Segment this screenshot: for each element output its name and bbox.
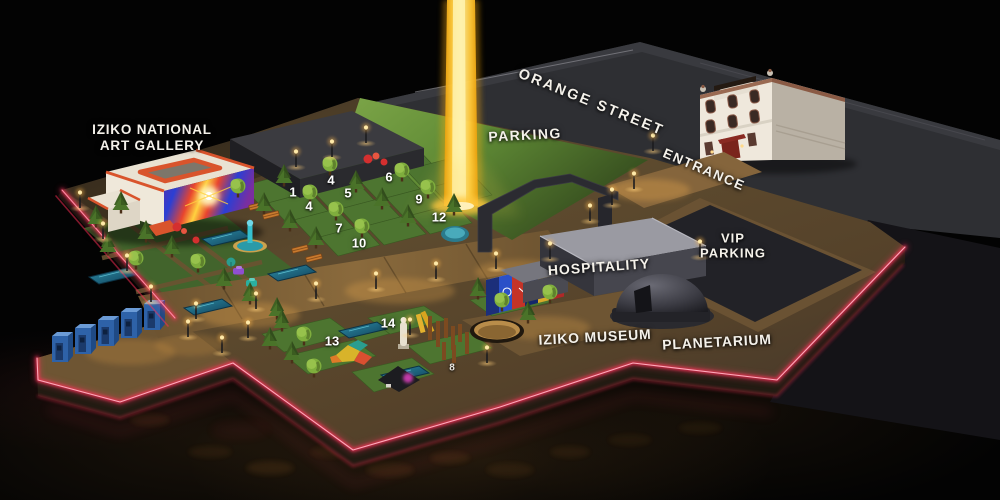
plot-marker-12: 12 — [432, 210, 446, 225]
venue-map-stage: IZIKO NATIONAL ART GALLERY ORANGE STREET… — [0, 0, 1000, 500]
plot-marker-13: 13 — [325, 334, 339, 349]
label-gallery-line2: ART GALLERY — [92, 138, 212, 154]
plot-marker-6: 6 — [385, 170, 392, 185]
plot-marker-5: 5 — [344, 186, 351, 201]
label-gallery-line1: IZIKO NATIONAL — [92, 122, 212, 138]
plot-marker-7: 7 — [335, 221, 342, 236]
plot-marker-10: 10 — [352, 236, 366, 251]
plot-marker-8: 8 — [449, 363, 455, 374]
plot-marker-4: 4 — [305, 199, 312, 214]
plot-marker-9: 9 — [415, 192, 422, 207]
venue-3d-scene — [0, 0, 1000, 500]
round-pond — [470, 319, 524, 343]
round-pool — [441, 226, 469, 242]
label-vip-parking: VIP PARKING — [700, 231, 766, 262]
plot-marker-1: 1 — [289, 185, 296, 200]
label-vip-line2: PARKING — [700, 246, 766, 261]
label-iziko-national-art-gallery: IZIKO NATIONAL ART GALLERY — [92, 122, 212, 154]
plot-marker-14: 14 — [381, 316, 395, 331]
label-vip-line1: VIP — [700, 231, 766, 246]
plot-marker-4: 4 — [327, 173, 334, 188]
